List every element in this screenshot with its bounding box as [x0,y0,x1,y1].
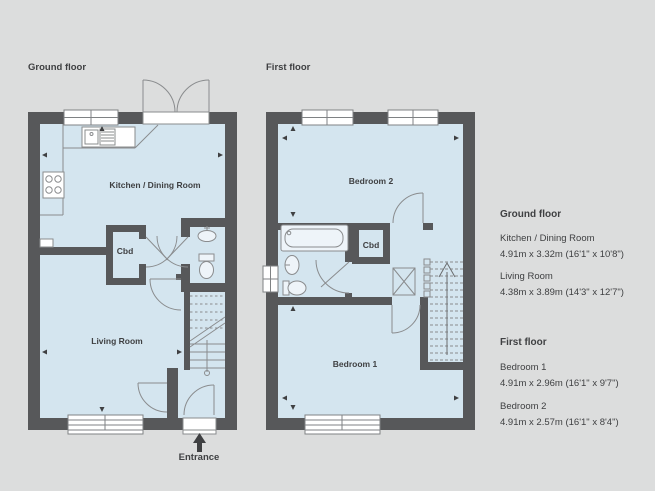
kitchen-dining-label: Kitchen / Dining Room [109,180,200,190]
ff-bath [281,225,348,251]
ff-basin [285,256,299,275]
gf-window-bottom [68,415,143,434]
legend-item-name: Bedroom 2 [500,401,546,412]
bedroom2-label: Bedroom 2 [349,176,393,186]
ff-window-top-1 [302,110,353,125]
entrance-arrow-icon [193,433,206,452]
gf-interior [40,124,225,418]
legend-item-dims: 4.38m x 3.89m (14'3" x 12'7") [500,287,624,298]
gf-hob [43,172,64,198]
ff-window-top-2 [388,110,438,125]
bedroom1-label: Bedroom 1 [333,359,377,369]
ff-window-left [263,266,278,292]
gf-french-doors [143,80,209,124]
legend-ground-heading: Ground floor [500,209,561,220]
floorplan-page: Ground floor First floor Kitchen / Dinin… [0,0,655,491]
legend-item-dims: 4.91m x 2.96m (16'1" x 9'7") [500,378,619,389]
legend-first-heading: First floor [500,337,547,348]
entrance-label: Entrance [179,452,220,463]
ground-floor-title: Ground floor [28,62,86,73]
first-floor-plan [263,110,475,434]
gf-radiator [40,239,53,247]
legend-item-name: Kitchen / Dining Room [500,233,595,244]
ff-window-bottom [305,415,380,434]
legend-item-name: Bedroom 1 [500,362,546,373]
ground-floor-plan [28,80,237,452]
living-room-label: Living Room [91,336,142,346]
gf-cupboard-label: Cbd [117,246,134,256]
ff-cupboard-label: Cbd [363,240,380,250]
gf-window-top [64,110,118,125]
first-floor-title: First floor [266,62,310,73]
ff-interior [278,124,463,418]
legend-item-name: Living Room [500,271,553,282]
gf-sink-unit [82,127,135,147]
ff-balustrade [424,259,430,297]
legend-item-dims: 4.91m x 2.57m (16'1" x 8'4") [500,417,619,428]
legend-item-dims: 4.91m x 3.32m (16'1" x 10'8") [500,249,624,260]
ff-toilet [283,281,306,295]
